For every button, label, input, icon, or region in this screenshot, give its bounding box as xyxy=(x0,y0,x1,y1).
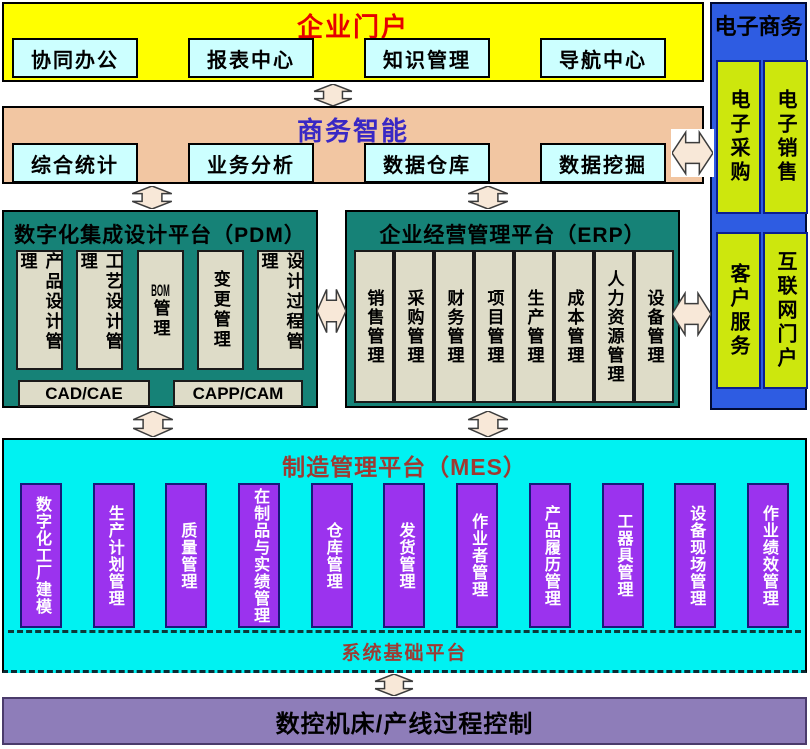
erp-module-row: 销售管理 采购管理 财务管理 项目管理 生产管理 成本管理 人力资源管理 设备管… xyxy=(347,250,678,403)
erp-module-hr: 人力资源管理 xyxy=(594,250,634,403)
double-arrow-pdm-mes-icon xyxy=(131,411,175,437)
pdm-tool-capp-cam: CAPP/CAM xyxy=(173,380,303,407)
ecommerce-column: 电子商务 电子采购 电子销售 客户服务 互联网门户 xyxy=(710,2,807,410)
double-arrow-portal-bi-icon xyxy=(312,84,354,106)
mes-module-digital-factory-modeling: 数字化工厂建模 xyxy=(20,483,62,628)
pdm-module-design-process: 设计过程管理 xyxy=(257,250,304,370)
mes-module-wip-performance: 在制品与实绩管理 xyxy=(238,483,280,628)
erp-module-production: 生产管理 xyxy=(514,250,554,403)
double-arrow-bi-erp-icon xyxy=(466,186,510,209)
system-base-platform-label: 系统基础平台 xyxy=(4,638,805,665)
bi-item-mining: 数据挖掘 xyxy=(540,143,666,183)
mes-module-operator: 作业者管理 xyxy=(456,483,498,628)
bi-item-statistics: 综合统计 xyxy=(12,143,138,183)
bi-item-warehouse: 数据仓库 xyxy=(364,143,490,183)
ecom-module-internet-portal: 互联网门户 xyxy=(763,232,808,389)
erp-platform: 企业经营管理平台（ERP） 销售管理 采购管理 财务管理 项目管理 生产管理 成… xyxy=(345,210,680,408)
mes-module-work-performance: 作业绩效管理 xyxy=(747,483,789,628)
system-base-divider xyxy=(8,630,801,633)
pdm-tool-cad-cae: CAD/CAE xyxy=(18,380,150,407)
pdm-module-row: 产品设计管理 工艺设计管理 BOM管理 变更管理 设计过程管理 xyxy=(4,250,316,370)
ecom-module-e-sales: 电子销售 xyxy=(763,60,808,214)
mes-module-quality: 质量管理 xyxy=(165,483,207,628)
architecture-diagram: 企业门户 协同办公 报表中心 知识管理 导航中心 商务智能 综合统计 业务分析 … xyxy=(0,0,810,749)
portal-item-knowledge: 知识管理 xyxy=(364,38,490,78)
mes-module-tooling: 工器具管理 xyxy=(602,483,644,628)
erp-module-sales: 销售管理 xyxy=(354,250,394,403)
mes-module-warehouse: 仓库管理 xyxy=(311,483,353,628)
pdm-module-product-design: 产品设计管理 xyxy=(16,250,63,370)
erp-module-equipment: 设备管理 xyxy=(634,250,674,403)
double-arrow-bi-ecommerce-icon xyxy=(671,129,714,177)
pdm-module-change: 变更管理 xyxy=(197,250,244,370)
portal-item-navigation: 导航中心 xyxy=(540,38,666,78)
erp-module-project: 项目管理 xyxy=(474,250,514,403)
portal-item-collaboration: 协同办公 xyxy=(12,38,138,78)
erp-module-finance: 财务管理 xyxy=(434,250,474,403)
double-arrow-mes-control-icon xyxy=(373,674,415,696)
mes-module-shipping: 发货管理 xyxy=(383,483,425,628)
bi-item-analysis: 业务分析 xyxy=(188,143,314,183)
enterprise-portal-banner: 企业门户 协同办公 报表中心 知识管理 导航中心 xyxy=(2,2,704,82)
mes-title: 制造管理平台（MES） xyxy=(4,448,805,482)
business-intelligence-banner: 商务智能 综合统计 业务分析 数据仓库 数据挖掘 xyxy=(2,106,704,184)
pdm-module-process-design: 工艺设计管理 xyxy=(76,250,123,370)
double-arrow-erp-mes-icon xyxy=(466,411,510,437)
mes-platform: 制造管理平台（MES） 数字化工厂建模 生产计划管理 质量管理 在制品与实绩管理… xyxy=(2,438,807,673)
mes-module-equipment-site: 设备现场管理 xyxy=(674,483,716,628)
mes-module-row: 数字化工厂建模 生产计划管理 质量管理 在制品与实绩管理 仓库管理 发货管理 作… xyxy=(4,483,805,628)
pdm-title: 数字化集成设计平台（PDM） xyxy=(4,219,316,249)
portal-item-reports: 报表中心 xyxy=(188,38,314,78)
erp-module-purchasing: 采购管理 xyxy=(394,250,434,403)
process-control-title: 数控机床/产线过程控制 xyxy=(276,704,534,739)
erp-module-cost: 成本管理 xyxy=(554,250,594,403)
process-control-bar: 数控机床/产线过程控制 xyxy=(2,697,807,745)
mes-module-product-history: 产品履历管理 xyxy=(529,483,571,628)
ecom-module-customer-service: 客户服务 xyxy=(716,232,761,389)
ecommerce-title: 电子商务 xyxy=(712,9,805,41)
double-arrow-pdm-erp-icon xyxy=(317,287,346,335)
mes-module-production-planning: 生产计划管理 xyxy=(93,483,135,628)
double-arrow-bi-pdm-icon xyxy=(130,186,174,209)
ecom-module-e-purchasing: 电子采购 xyxy=(716,60,761,214)
pdm-platform: 数字化集成设计平台（PDM） 产品设计管理 工艺设计管理 BOM管理 变更管理 … xyxy=(2,210,318,408)
double-arrow-erp-ecommerce-icon xyxy=(672,291,711,337)
pdm-module-bom: BOM管理 xyxy=(137,250,184,370)
erp-title: 企业经营管理平台（ERP） xyxy=(347,219,678,249)
